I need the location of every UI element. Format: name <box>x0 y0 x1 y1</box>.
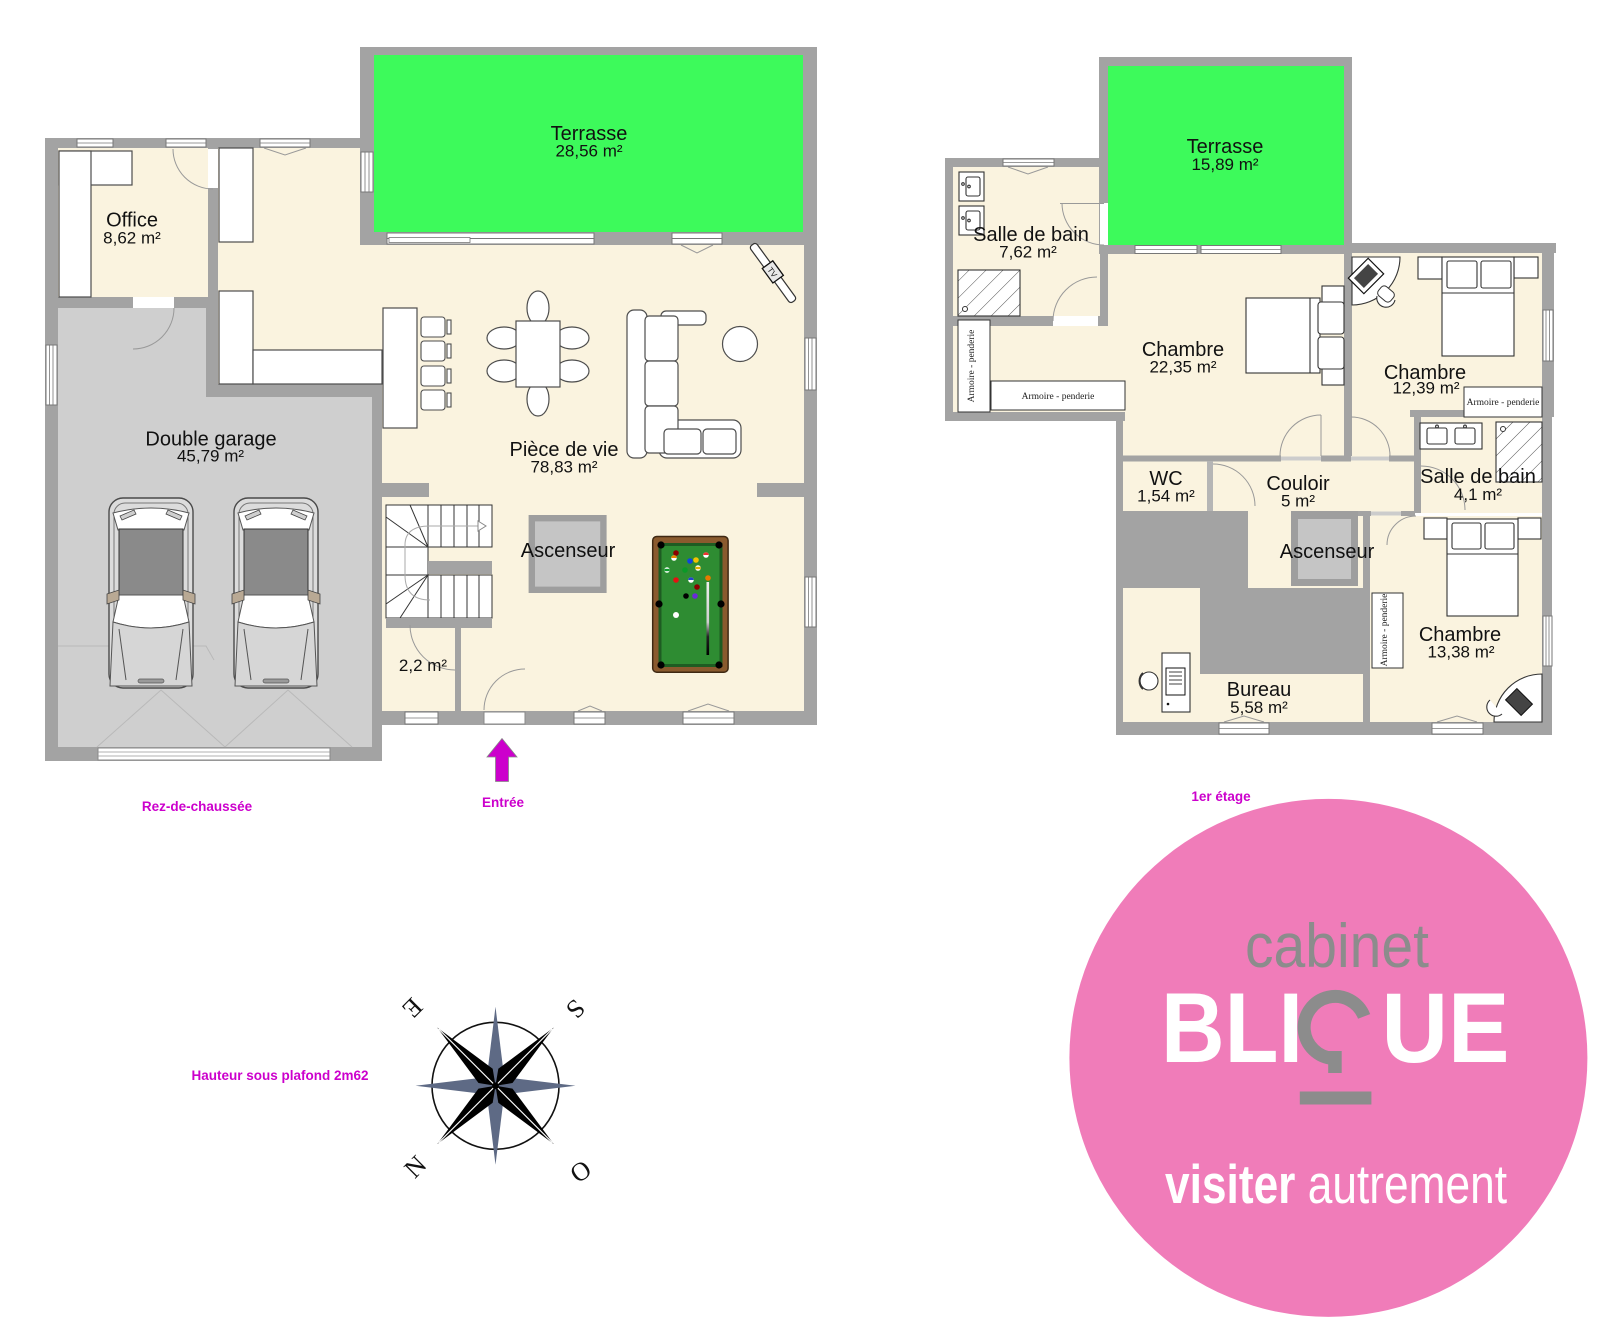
svg-text:Armoire - penderie: Armoire - penderie <box>967 330 977 403</box>
svg-text:UE: UE <box>1382 972 1510 1083</box>
svg-text:Rez-de-chaussée: Rez-de-chaussée <box>142 799 253 814</box>
svg-text:5,58 m²: 5,58 m² <box>1230 698 1288 717</box>
svg-text:Armoire - penderie: Armoire - penderie <box>1380 594 1390 667</box>
svg-text:15,89 m²: 15,89 m² <box>1191 155 1258 174</box>
svg-text:2,2 m²: 2,2 m² <box>399 656 448 675</box>
svg-text:12,39 m²: 12,39 m² <box>1392 379 1459 398</box>
svg-text:Ascenseur: Ascenseur <box>1280 541 1375 563</box>
svg-text:45,79 m²: 45,79 m² <box>177 447 244 466</box>
svg-text:Armoire - penderie: Armoire - penderie <box>1467 398 1540 408</box>
svg-text:Entrée: Entrée <box>482 795 525 810</box>
svg-text:Ascenseur: Ascenseur <box>521 540 616 562</box>
svg-text:1,54 m²: 1,54 m² <box>1137 487 1195 506</box>
svg-text:E: E <box>397 992 429 1024</box>
svg-text:Armoire - penderie: Armoire - penderie <box>1022 392 1095 402</box>
svg-text:Hauteur sous plafond 2m62: Hauteur sous plafond 2m62 <box>191 1068 368 1083</box>
svg-text:BLI: BLI <box>1161 972 1303 1083</box>
svg-text:7,62 m²: 7,62 m² <box>999 243 1057 262</box>
svg-text:S: S <box>560 993 591 1024</box>
svg-text:cabinet: cabinet <box>1245 912 1429 981</box>
svg-text:22,35 m²: 22,35 m² <box>1149 358 1216 377</box>
svg-text:O: O <box>565 1154 597 1189</box>
svg-text:visiter autrement: visiter autrement <box>1165 1153 1507 1215</box>
svg-text:5 m²: 5 m² <box>1281 492 1315 511</box>
svg-text:1er étage: 1er étage <box>1191 789 1251 804</box>
svg-text:8,62 m²: 8,62 m² <box>103 229 161 248</box>
svg-text:78,83 m²: 78,83 m² <box>530 458 597 477</box>
svg-text:13,38 m²: 13,38 m² <box>1427 643 1494 662</box>
svg-text:N: N <box>399 1150 433 1184</box>
svg-text:28,56 m²: 28,56 m² <box>555 142 622 161</box>
svg-text:4,1 m²: 4,1 m² <box>1454 485 1503 504</box>
